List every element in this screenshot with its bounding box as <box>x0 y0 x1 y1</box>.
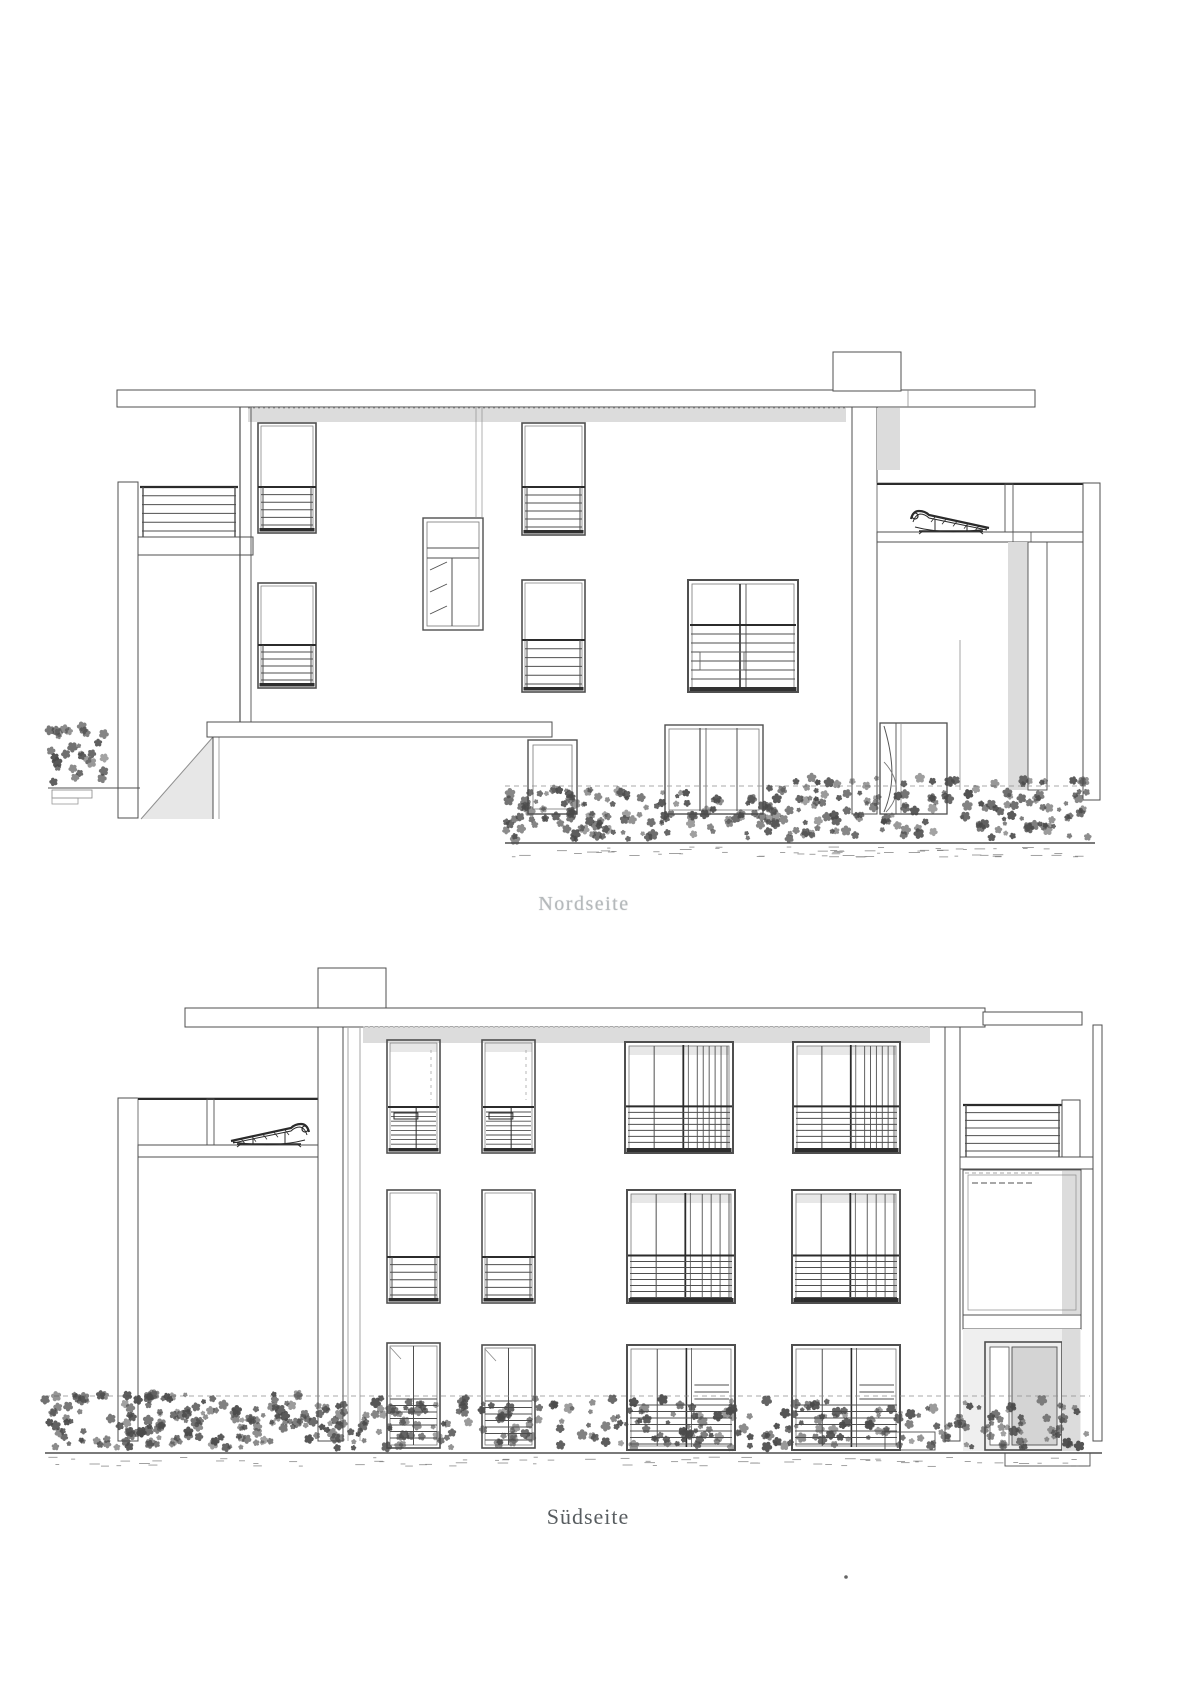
flower-bed <box>501 783 796 847</box>
window <box>387 1190 440 1303</box>
window-wide <box>793 1042 900 1153</box>
ground-texture <box>512 847 1084 857</box>
window-door <box>387 1343 440 1448</box>
flower-bed <box>39 1388 350 1453</box>
vegetation <box>39 1388 1091 1453</box>
window <box>482 1190 535 1303</box>
nordseite-caption: Nordseite <box>484 893 684 916</box>
left-balcony <box>48 407 577 819</box>
railing <box>140 487 238 537</box>
flower-bed <box>45 721 111 787</box>
chaise-longue <box>231 1124 309 1147</box>
suedseite-elevation <box>39 968 1102 1466</box>
window <box>258 423 316 533</box>
flower-bed <box>599 1392 755 1453</box>
windows <box>387 1040 900 1450</box>
stair-window <box>423 518 483 630</box>
window <box>482 1040 535 1153</box>
window-wide <box>688 580 798 692</box>
window <box>258 583 316 688</box>
chaise-longue <box>911 511 989 534</box>
scan-speck <box>844 1575 848 1579</box>
roof-terrace <box>852 407 1100 814</box>
scanned-drawing-page: Nordseite Südseite <box>0 0 1202 1700</box>
window-wide <box>792 1190 900 1303</box>
window-wide <box>625 1042 733 1153</box>
elevations-canvas <box>0 0 1202 1700</box>
suedseite-caption: Südseite <box>488 1504 688 1530</box>
window <box>522 423 585 535</box>
flower-bed <box>347 1394 600 1454</box>
entrance-bay <box>945 1025 1102 1451</box>
window <box>387 1040 440 1153</box>
left-terrace <box>118 1027 360 1441</box>
railing <box>963 1105 1062 1157</box>
nordseite-elevation <box>45 352 1100 857</box>
ground-texture <box>48 1457 1087 1466</box>
window-wide <box>627 1190 735 1303</box>
window <box>522 580 585 692</box>
